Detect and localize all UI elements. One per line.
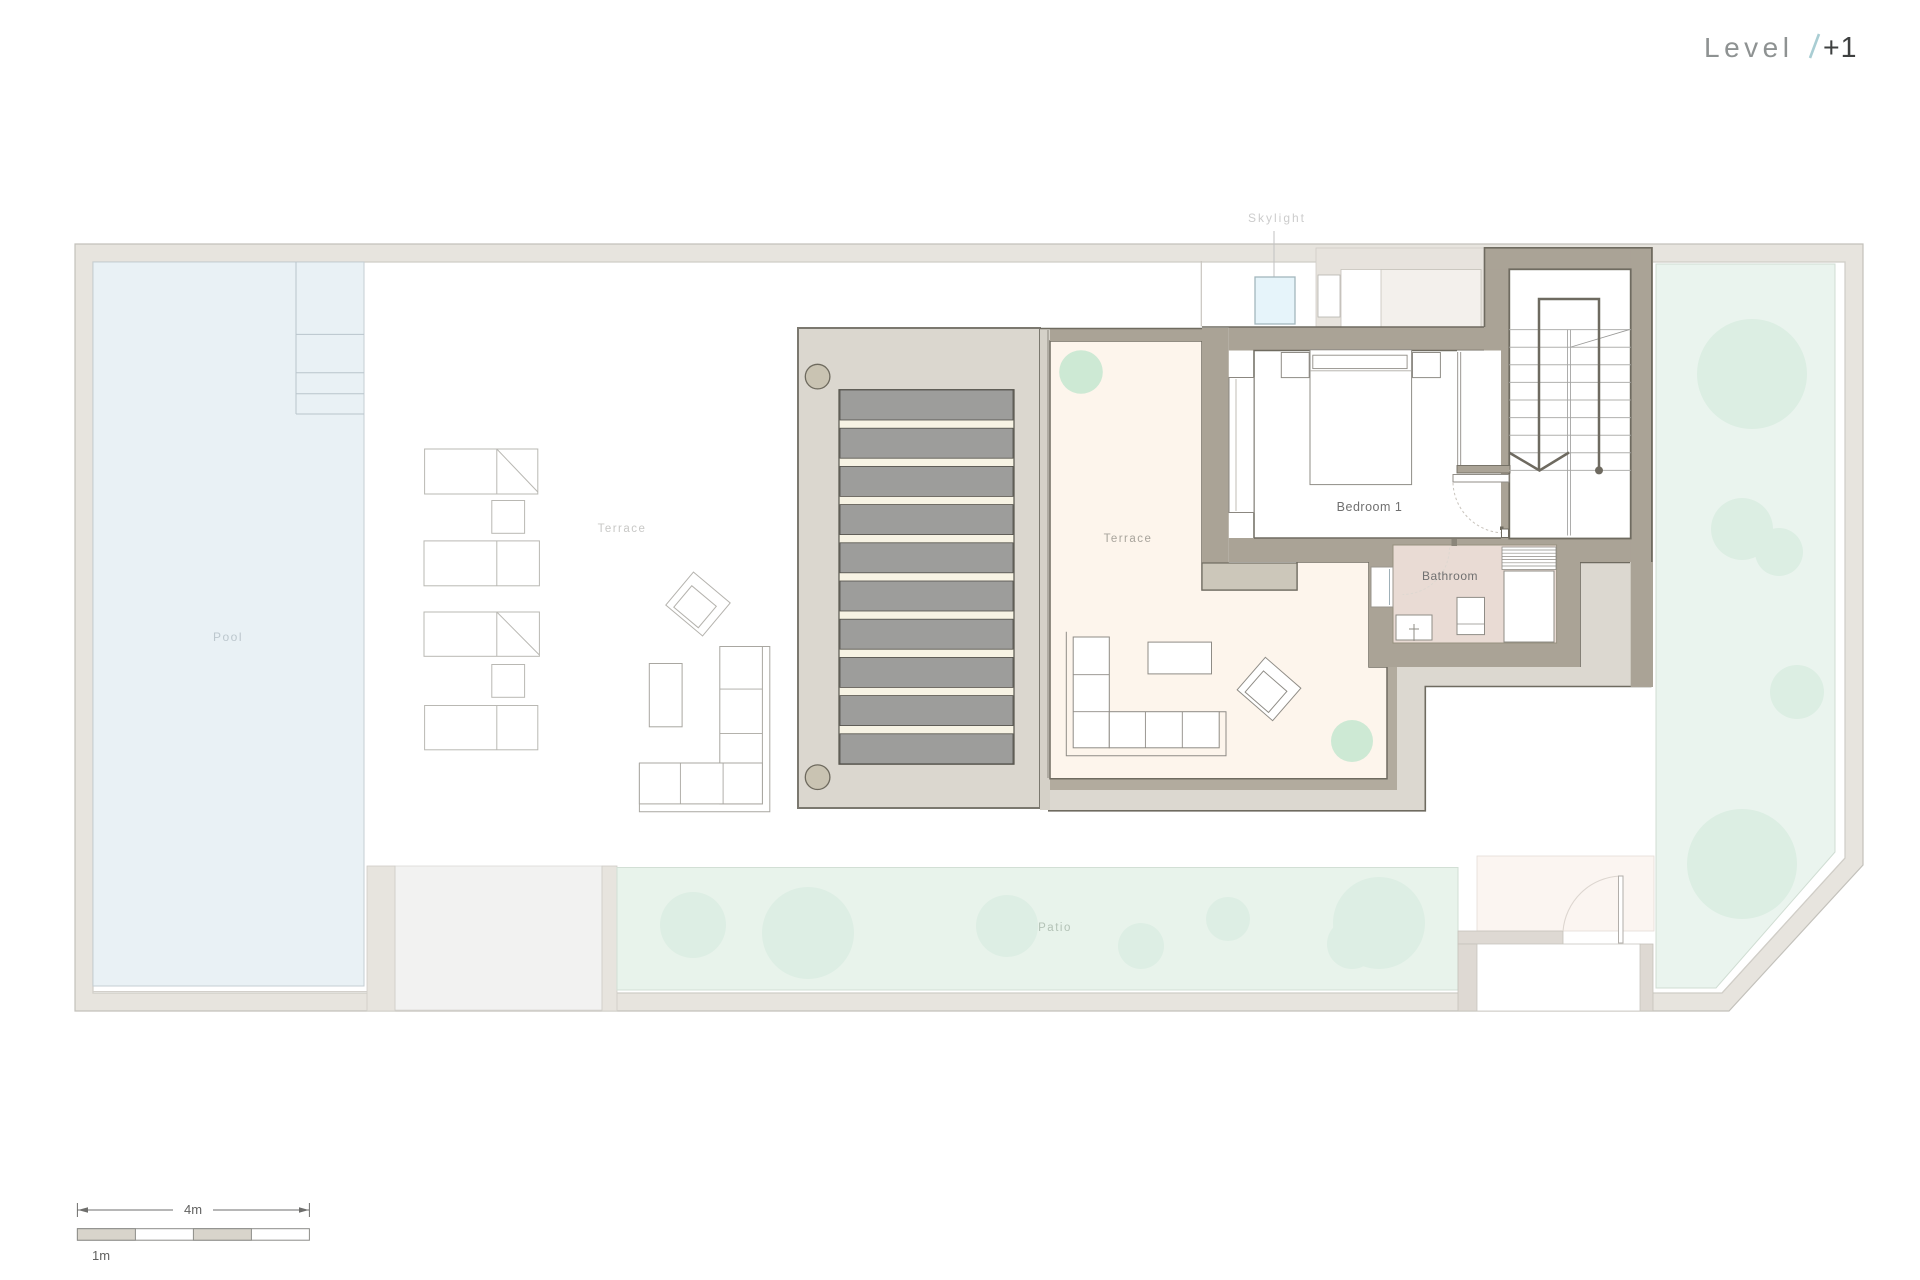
svg-text:Bathroom: Bathroom xyxy=(1422,569,1478,583)
svg-text:+1: +1 xyxy=(1823,32,1858,64)
svg-text:Patio: Patio xyxy=(1038,922,1072,934)
svg-text:1m: 1m xyxy=(92,1248,110,1263)
svg-text:Terrace: Terrace xyxy=(1104,533,1153,545)
svg-text:Terrace: Terrace xyxy=(598,523,647,535)
svg-text:4m: 4m xyxy=(184,1202,202,1217)
svg-text:Skylight: Skylight xyxy=(1248,211,1306,225)
svg-text:Level: Level xyxy=(1704,32,1793,63)
svg-text:Bedroom 1: Bedroom 1 xyxy=(1337,500,1403,514)
svg-text:Pool: Pool xyxy=(213,630,243,644)
